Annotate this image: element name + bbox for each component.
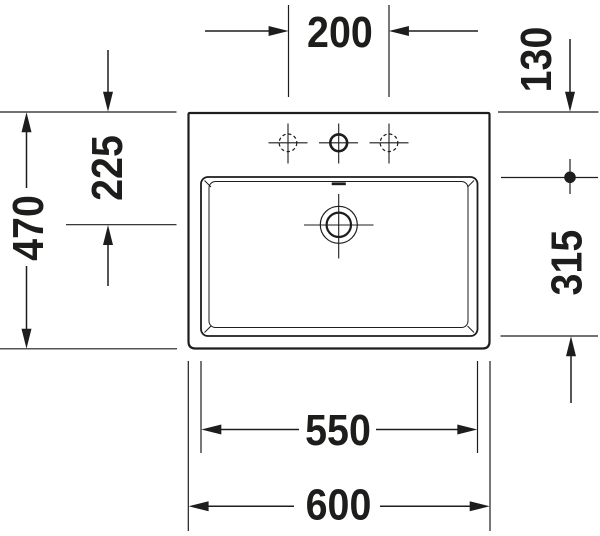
svg-text:315: 315 [542,230,592,296]
svg-text:130: 130 [511,27,561,93]
svg-text:550: 550 [305,405,371,455]
svg-text:470: 470 [3,195,53,261]
svg-text:225: 225 [82,135,132,201]
svg-text:600: 600 [306,479,372,529]
svg-text:200: 200 [307,7,373,57]
